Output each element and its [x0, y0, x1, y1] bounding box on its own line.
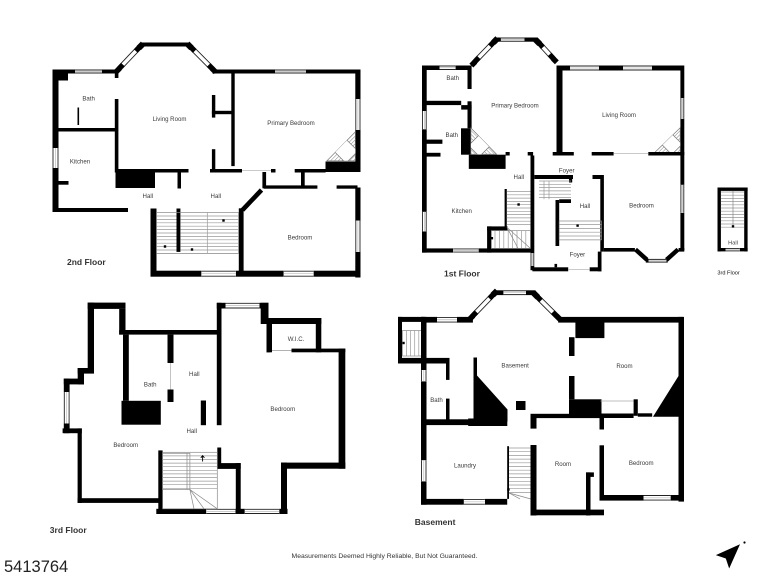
- svg-text:Kitchen: Kitchen: [70, 159, 90, 166]
- svg-text:Bedroom: Bedroom: [629, 203, 654, 210]
- svg-text:3rd Floor: 3rd Floor: [50, 525, 88, 535]
- svg-text:Hall: Hall: [580, 203, 591, 210]
- svg-text:Bedroom: Bedroom: [288, 235, 313, 242]
- svg-text:Bath: Bath: [446, 75, 459, 82]
- svg-text:Hall: Hall: [143, 193, 154, 200]
- svg-text:Room: Room: [616, 363, 632, 370]
- svg-text:2nd Floor: 2nd Floor: [67, 257, 106, 267]
- svg-text:5413764: 5413764: [4, 558, 68, 576]
- svg-text:Hall: Hall: [189, 371, 200, 378]
- svg-text:Basement: Basement: [501, 362, 529, 369]
- svg-text:Living Room: Living Room: [153, 116, 187, 123]
- svg-text:Bedroom: Bedroom: [629, 460, 654, 467]
- svg-text:3rd Floor: 3rd Floor: [717, 270, 740, 276]
- svg-text:Foyer: Foyer: [570, 252, 586, 259]
- svg-text:Room: Room: [555, 461, 571, 468]
- svg-text:Bath: Bath: [144, 382, 157, 389]
- svg-text:Hall: Hall: [186, 428, 197, 435]
- svg-text:Laundry: Laundry: [454, 463, 477, 470]
- svg-text:Foyer: Foyer: [559, 167, 575, 174]
- svg-text:Bedroom: Bedroom: [270, 406, 295, 413]
- svg-text:Measurements Deemed Highly Rel: Measurements Deemed Highly Reliable, But…: [292, 553, 478, 560]
- svg-text:Primary Bedroom: Primary Bedroom: [267, 120, 314, 127]
- svg-text:Hall: Hall: [211, 193, 222, 200]
- svg-text:W.I.C.: W.I.C.: [288, 336, 305, 343]
- svg-text:Bedroom: Bedroom: [113, 442, 138, 449]
- svg-text:Primary Bedroom: Primary Bedroom: [491, 103, 538, 110]
- svg-text:Bath: Bath: [446, 132, 459, 139]
- svg-text:Bath: Bath: [82, 95, 95, 102]
- svg-text:Hall: Hall: [514, 174, 525, 181]
- svg-text:Living Room: Living Room: [602, 112, 636, 119]
- svg-text:Hall: Hall: [728, 241, 738, 247]
- svg-text:Basement: Basement: [415, 517, 456, 527]
- svg-text:1st Floor: 1st Floor: [444, 269, 481, 279]
- svg-text:Kitchen: Kitchen: [452, 208, 472, 215]
- svg-text:Bath: Bath: [430, 397, 443, 404]
